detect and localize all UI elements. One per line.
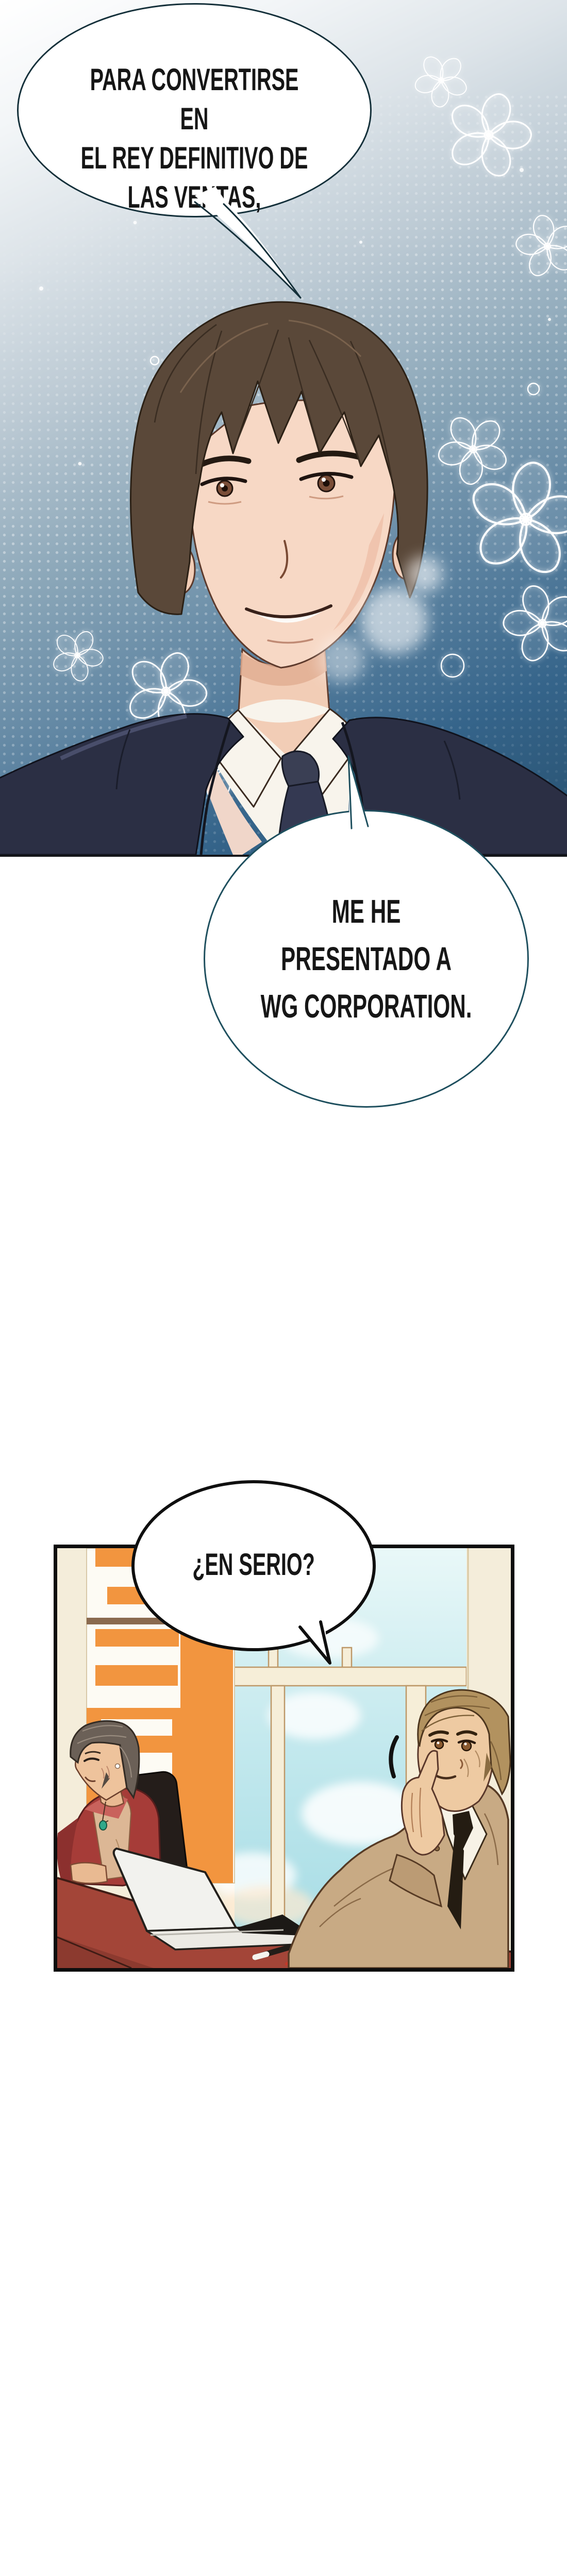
- light-bokeh: [406, 556, 442, 592]
- speech-bubble-2-text: ME HE PRESENTADO A WG CORPORATION.: [260, 811, 473, 1030]
- speech-bubble-1-text: PARA CONVERTIRSE EN EL REY DEFINITIVO DE…: [78, 5, 310, 217]
- speech-bubble-1: PARA CONVERTIRSE EN EL REY DEFINITIVO DE…: [17, 3, 372, 217]
- speech-bubble-3: ¿EN SERIO?: [131, 1480, 376, 1651]
- light-bokeh: [361, 587, 428, 654]
- hand: [71, 1862, 107, 1883]
- comic-page: PARA CONVERTIRSE EN EL REY DEFINITIVO DE…: [0, 0, 567, 2576]
- pendant-necklace: [99, 1821, 107, 1830]
- speech-bubble-3-text: ¿EN SERIO?: [192, 1483, 315, 1584]
- light-bokeh: [319, 636, 365, 683]
- speech-bubble-2: ME HE PRESENTADO A WG CORPORATION.: [204, 810, 529, 1108]
